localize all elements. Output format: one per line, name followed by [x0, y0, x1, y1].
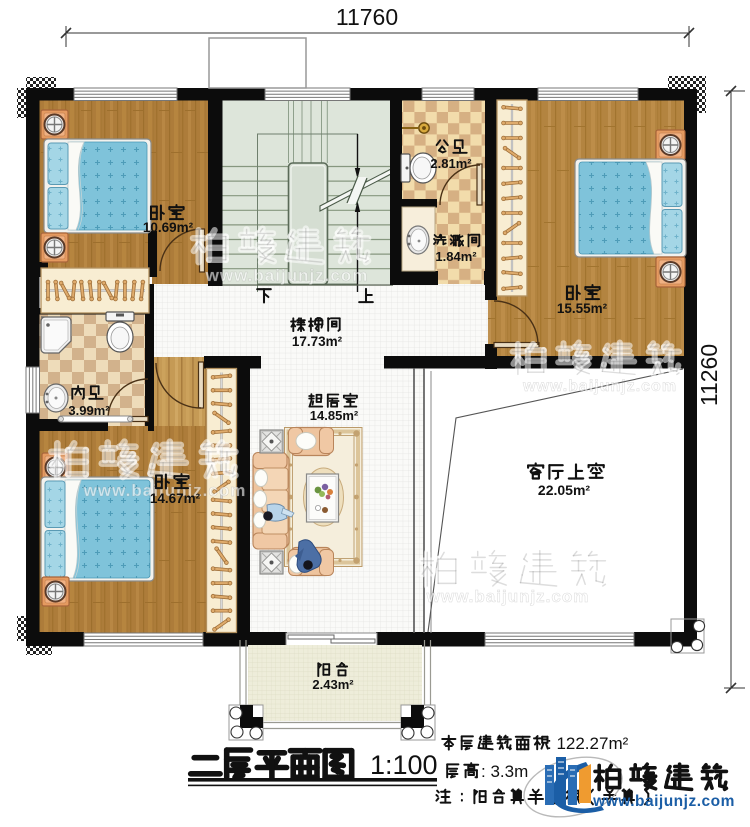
svg-text:www.baijunjz.com: www.baijunjz.com — [522, 378, 677, 395]
svg-text:15.55m²: 15.55m² — [557, 301, 608, 316]
svg-text:www.baijunjz.com: www.baijunjz.com — [205, 266, 369, 285]
svg-text:22.05m²: 22.05m² — [538, 482, 590, 498]
svg-text:: 3.3m: : 3.3m — [481, 762, 528, 781]
svg-text:: 122.27m²: : 122.27m² — [547, 734, 629, 753]
svg-text:1.84m²: 1.84m² — [435, 249, 477, 264]
svg-text:2.43m²: 2.43m² — [312, 677, 354, 692]
svg-text:14.85m²: 14.85m² — [310, 408, 359, 423]
svg-text:10.69m²: 10.69m² — [143, 220, 194, 235]
svg-text:www.baijunjz.com: www.baijunjz.com — [426, 587, 590, 606]
svg-text:17.73m²: 17.73m² — [292, 334, 343, 349]
svg-text:14.67m²: 14.67m² — [150, 491, 201, 506]
svg-text:3.99m²: 3.99m² — [68, 403, 110, 418]
svg-text:11260: 11260 — [696, 344, 722, 406]
svg-text:1:100: 1:100 — [370, 750, 438, 780]
svg-text:www.baijunjz.com: www.baijunjz.com — [592, 793, 735, 810]
svg-text:11760: 11760 — [336, 4, 398, 30]
svg-text:2.81m²: 2.81m² — [430, 156, 472, 171]
